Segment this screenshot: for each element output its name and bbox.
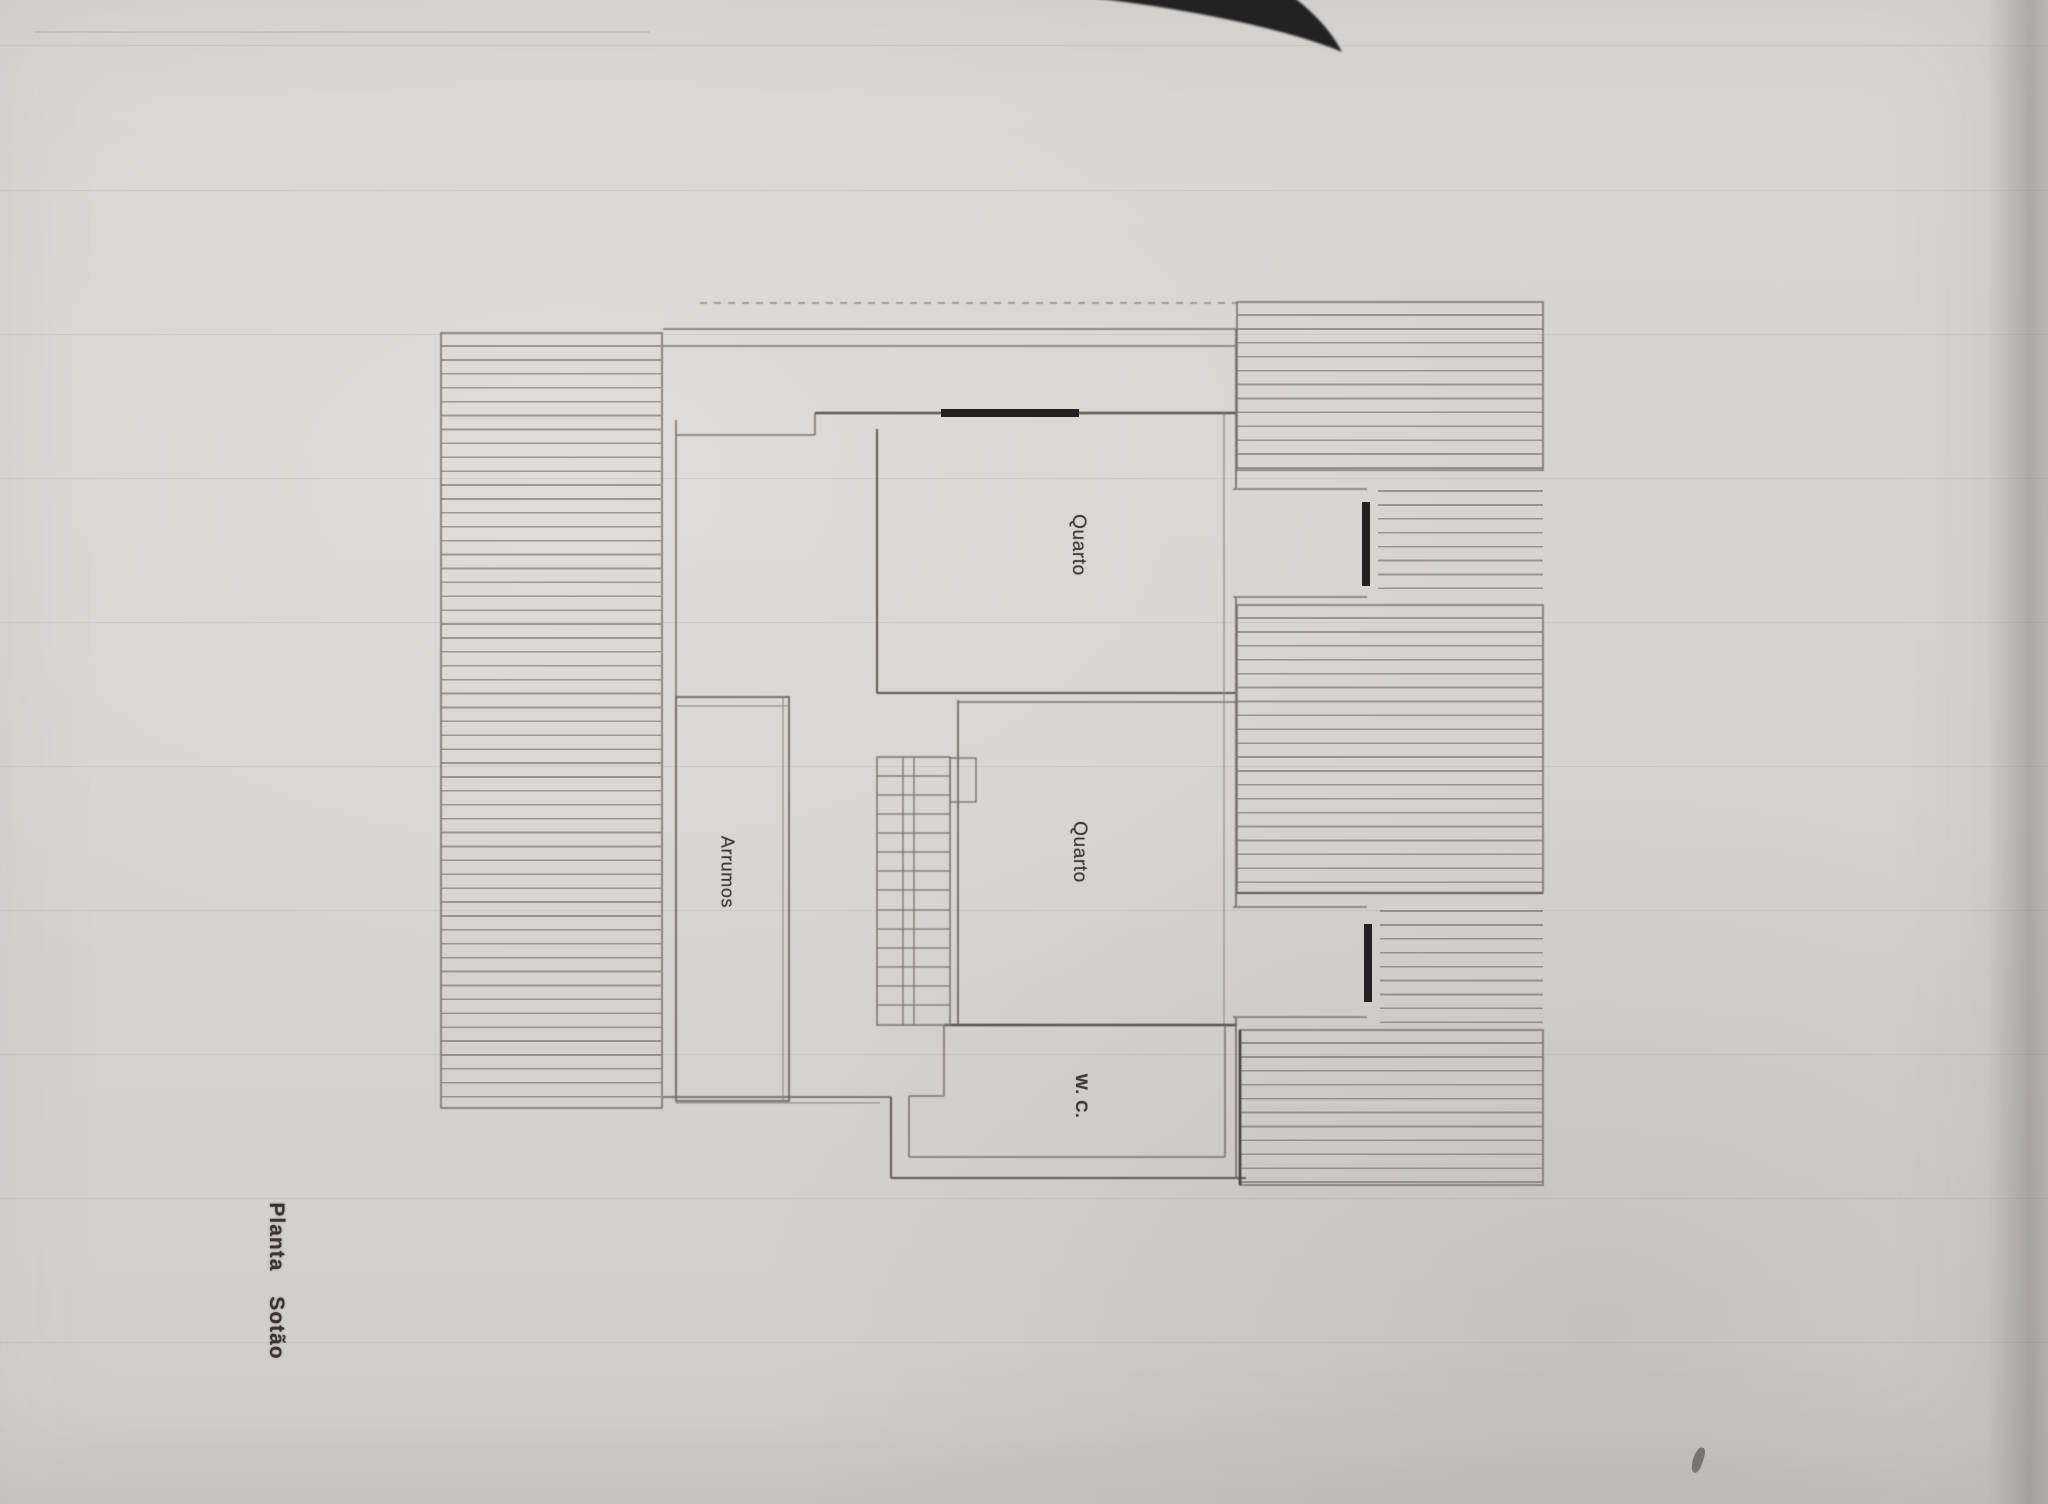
quarto1-north-window bbox=[941, 409, 1079, 417]
room-label-quarto-top: Quarto bbox=[1067, 514, 1089, 576]
room-label-wc: W. C. bbox=[1071, 1074, 1091, 1119]
room-label-quarto-middle: Quarto bbox=[1068, 821, 1090, 883]
dormer2-window bbox=[1364, 924, 1372, 1002]
roof-top-right-border bbox=[1237, 302, 1543, 470]
scanner-shadow-artifact bbox=[1093, 0, 1342, 52]
dormer1-window bbox=[1362, 502, 1370, 586]
dormer1-walls bbox=[1233, 489, 1367, 597]
room-label-arrumos: Arrumos bbox=[717, 836, 738, 908]
dormer2-walls bbox=[1233, 907, 1367, 1017]
window-markers bbox=[941, 409, 1372, 1002]
walls-and-roof-borders bbox=[441, 302, 1543, 1185]
roof-left-border bbox=[441, 333, 662, 1108]
roof-middle-right-border bbox=[1237, 605, 1543, 893]
corridor-top-wall bbox=[676, 413, 815, 435]
stair-landing-post bbox=[950, 758, 976, 802]
plan-title: Planta Sotão bbox=[264, 1202, 288, 1359]
north-wall bbox=[663, 329, 1237, 346]
scanned-floor-plan-page: Quarto Quarto Arrumos W. C. Planta Sotão bbox=[0, 0, 2048, 1504]
roof-bottom-right-border bbox=[1240, 1030, 1543, 1185]
staircase bbox=[877, 757, 976, 1025]
wc-walls bbox=[909, 1025, 1225, 1157]
floor-plan-linework bbox=[0, 0, 2048, 1504]
south-outer-wall bbox=[891, 1097, 1246, 1178]
